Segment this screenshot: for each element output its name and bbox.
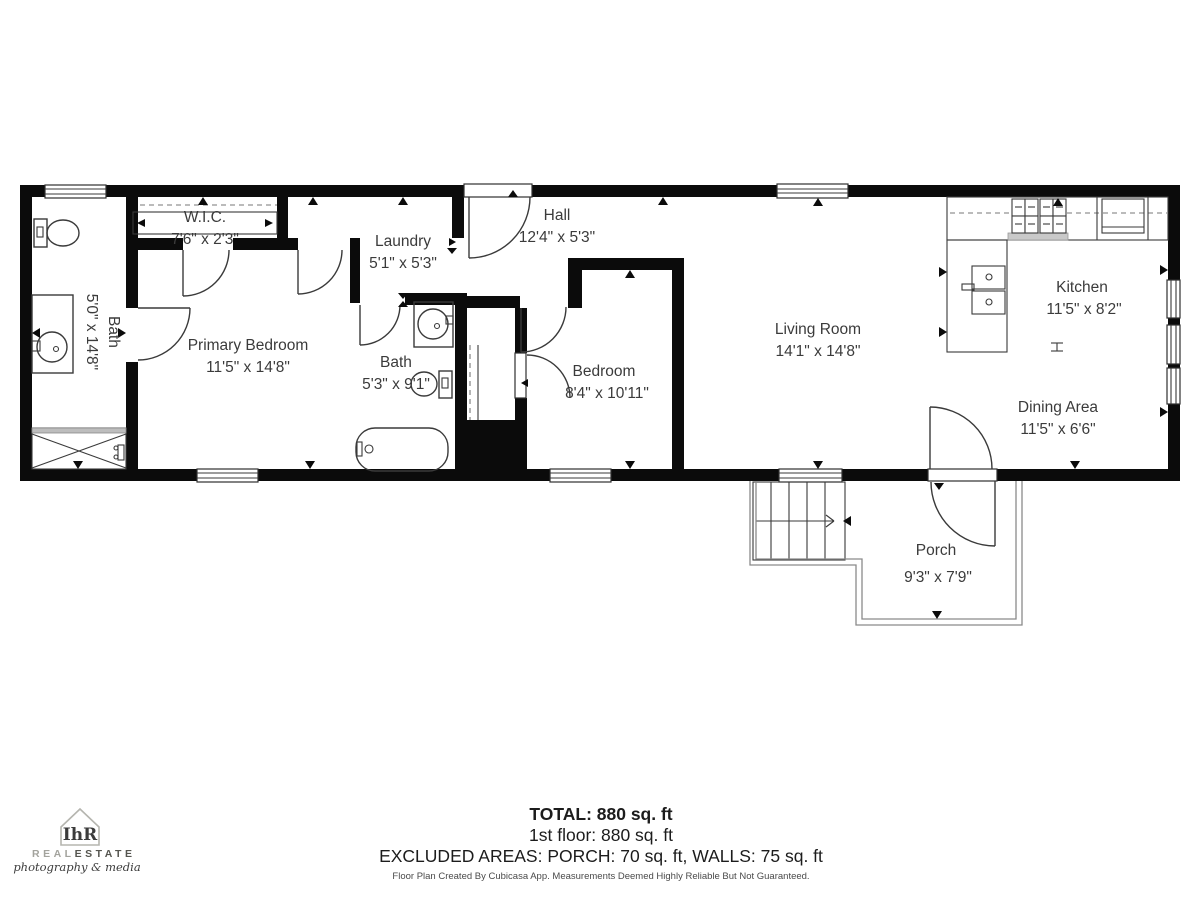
wic-door bbox=[183, 250, 229, 296]
total-area-text: TOTAL: 880 sq. ft bbox=[529, 804, 672, 824]
floor-plan-page: Bath 5'0" x 14'8" W.I.C. 7'6" x 2'3" Pri… bbox=[0, 0, 1200, 900]
bathtub bbox=[356, 428, 448, 471]
room-label-laundry: Laundry 5'1" x 5'3" bbox=[369, 233, 437, 272]
measure-point-icon bbox=[1051, 343, 1063, 351]
svg-text:Primary Bedroom: Primary Bedroom bbox=[188, 337, 309, 354]
svg-text:Bedroom: Bedroom bbox=[573, 363, 636, 380]
logo-brand-text: REALESTATE bbox=[32, 848, 135, 860]
room-label-wic: W.I.C. 7'6" x 2'3" bbox=[171, 209, 239, 248]
svg-text:Bath: Bath bbox=[380, 354, 412, 371]
window-right-3 bbox=[1167, 368, 1180, 404]
svg-text:Porch: Porch bbox=[916, 542, 957, 559]
excluded-area-text: EXCLUDED AREAS: PORCH: 70 sq. ft, WALLS:… bbox=[379, 846, 823, 866]
svg-text:11'5" x 6'6": 11'5" x 6'6" bbox=[1020, 421, 1095, 438]
stairs bbox=[753, 482, 851, 560]
bath-door bbox=[360, 305, 400, 345]
room-label-kitchen: Kitchen 11'5" x 8'2" bbox=[1046, 279, 1121, 318]
summary-block: TOTAL: 880 sq. ft 1st floor: 880 sq. ft … bbox=[379, 804, 823, 882]
bedroom-closet-rod bbox=[470, 345, 478, 420]
svg-text:Laundry: Laundry bbox=[375, 233, 431, 250]
disclaimer-text: Floor Plan Created By Cubicasa App. Meas… bbox=[392, 871, 809, 882]
svg-text:11'5" x 14'8": 11'5" x 14'8" bbox=[206, 359, 290, 376]
kitchen-sink bbox=[962, 266, 1005, 314]
window-living-top bbox=[777, 184, 848, 198]
room-label-bath-mid: Bath 5'3" x 9'1" bbox=[362, 354, 430, 393]
svg-text:Bath: Bath bbox=[105, 316, 122, 348]
front-door bbox=[464, 184, 532, 258]
room-label-bedroom: Bedroom 8'4" x 10'11" bbox=[565, 363, 649, 402]
floor-area-text: 1st floor: 880 sq. ft bbox=[529, 825, 673, 845]
svg-text:Living Room: Living Room bbox=[775, 321, 861, 338]
dimension-arrows bbox=[32, 190, 1168, 619]
window-primary-bottom bbox=[197, 469, 258, 482]
bedroom-entry-door bbox=[521, 307, 566, 352]
logo-monogram: IhR bbox=[63, 825, 98, 845]
svg-text:14'1" x 14'8": 14'1" x 14'8" bbox=[775, 343, 860, 360]
window-bedroom-bottom bbox=[550, 469, 611, 482]
svg-text:W.I.C.: W.I.C. bbox=[184, 209, 226, 226]
svg-text:7'6" x 2'3": 7'6" x 2'3" bbox=[171, 231, 239, 248]
window-bath-top bbox=[45, 185, 106, 198]
svg-text:5'3" x 9'1": 5'3" x 9'1" bbox=[362, 376, 430, 393]
svg-text:12'4" x 5'3": 12'4" x 5'3" bbox=[519, 229, 595, 246]
closet-door bbox=[515, 353, 570, 398]
window-right-2 bbox=[1167, 325, 1180, 364]
svg-text:5'0" x 14'8": 5'0" x 14'8" bbox=[83, 294, 100, 370]
room-label-bath-left: Bath 5'0" x 14'8" bbox=[83, 294, 122, 370]
windows bbox=[45, 184, 1180, 482]
svg-text:11'5" x 8'2": 11'5" x 8'2" bbox=[1046, 301, 1121, 318]
logo-tagline: photography & media bbox=[13, 860, 141, 874]
svg-text:5'1" x 5'3": 5'1" x 5'3" bbox=[369, 255, 437, 272]
room-label-hall: Hall 12'4" x 5'3" bbox=[519, 207, 595, 246]
room-label-dining-area: Dining Area 11'5" x 6'6" bbox=[1018, 399, 1099, 438]
bathroom-sink-2 bbox=[414, 302, 453, 347]
svg-text:Kitchen: Kitchen bbox=[1056, 279, 1108, 296]
refrigerator bbox=[1102, 199, 1144, 233]
porch-outline bbox=[750, 481, 1022, 625]
porch-door bbox=[928, 407, 997, 546]
room-label-living-room: Living Room 14'1" x 14'8" bbox=[775, 321, 861, 360]
svg-text:Hall: Hall bbox=[544, 207, 571, 224]
svg-text:9'3" x 7'9": 9'3" x 7'9" bbox=[904, 569, 972, 586]
floor-plan-svg: Bath 5'0" x 14'8" W.I.C. 7'6" x 2'3" Pri… bbox=[0, 0, 1200, 900]
window-right-1 bbox=[1167, 280, 1180, 318]
bath-left-door bbox=[138, 308, 190, 360]
company-logo: IhR REALESTATE photography & media bbox=[13, 809, 141, 874]
primary-bedroom-door bbox=[298, 250, 342, 294]
svg-text:8'4" x 10'11": 8'4" x 10'11" bbox=[565, 385, 649, 402]
toilet bbox=[34, 219, 79, 247]
room-label-porch: Porch 9'3" x 7'9" bbox=[904, 542, 972, 586]
room-label-primary-bedroom: Primary Bedroom 11'5" x 14'8" bbox=[188, 337, 309, 376]
window-stairs-bottom bbox=[779, 469, 842, 482]
svg-text:Dining Area: Dining Area bbox=[1018, 399, 1099, 416]
